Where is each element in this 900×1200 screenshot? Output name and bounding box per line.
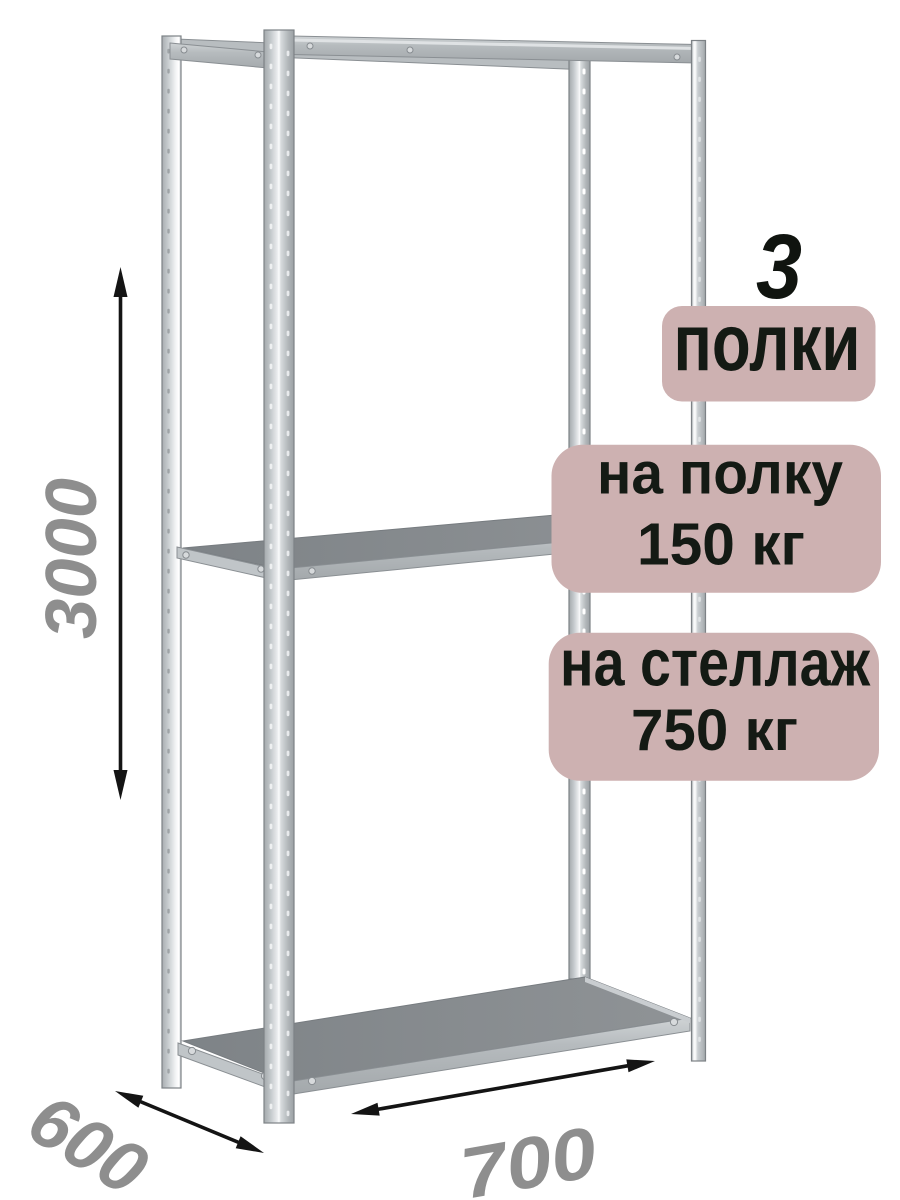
svg-text:150 кг: 150 кг [637, 511, 805, 578]
svg-text:750 кг: 750 кг [631, 698, 798, 763]
svg-text:3000: 3000 [32, 478, 112, 639]
svg-text:700: 700 [455, 1112, 603, 1200]
svg-text:полки: полки [674, 298, 861, 388]
svg-text:на полку: на полку [597, 440, 843, 507]
svg-text:на стеллаж: на стеллаж [560, 627, 870, 700]
